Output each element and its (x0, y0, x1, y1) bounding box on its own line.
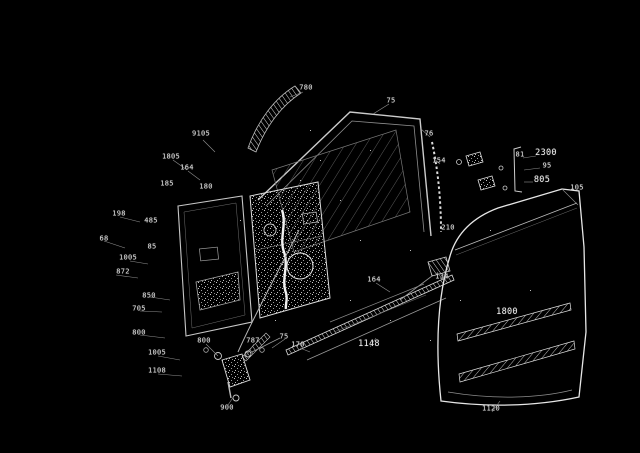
part-label: 1005 (148, 350, 166, 357)
part-label: 85 (147, 244, 156, 251)
diagram-stage: 7807591051805164185180198485688510058728… (0, 0, 640, 453)
part-label: 105 (570, 185, 584, 192)
part-label: 1005 (119, 255, 137, 262)
part-label: 76 (424, 131, 433, 138)
part-label: 75 (386, 98, 395, 105)
part-label: 900 (220, 405, 234, 412)
part-label: 164 (367, 277, 381, 284)
part-label: 787 (246, 338, 260, 345)
part-label: 805 (534, 176, 550, 185)
part-label: 1148 (358, 340, 380, 349)
part-labels-layer: 7807591051805164185180198485688510058728… (0, 0, 640, 453)
part-label: 850 (142, 293, 156, 300)
part-label: 1108 (148, 368, 166, 375)
part-label: 9105 (192, 131, 210, 138)
part-label: 780 (299, 85, 313, 92)
part-label: 134 (435, 274, 449, 281)
part-label: 1800 (496, 308, 518, 317)
part-label: 180 (199, 184, 213, 191)
part-label: 485 (144, 218, 158, 225)
part-label: 198 (112, 211, 126, 218)
part-label: 75 (279, 334, 288, 341)
part-label: 800 (197, 338, 211, 345)
part-label: 170 (291, 342, 305, 349)
part-label: 95 (542, 163, 551, 170)
part-label: 154 (432, 158, 446, 165)
part-label: 68 (99, 236, 108, 243)
part-label: 1120 (482, 406, 500, 413)
part-label: 1805 (162, 154, 180, 161)
part-label: 185 (160, 181, 174, 188)
part-label: 872 (116, 269, 130, 276)
part-label: 210 (441, 225, 455, 232)
part-label: 81 (515, 152, 524, 159)
part-label: 800 (132, 330, 146, 337)
part-label: 2300 (535, 149, 557, 158)
part-label: 164 (180, 165, 194, 172)
part-label: 705 (132, 306, 146, 313)
